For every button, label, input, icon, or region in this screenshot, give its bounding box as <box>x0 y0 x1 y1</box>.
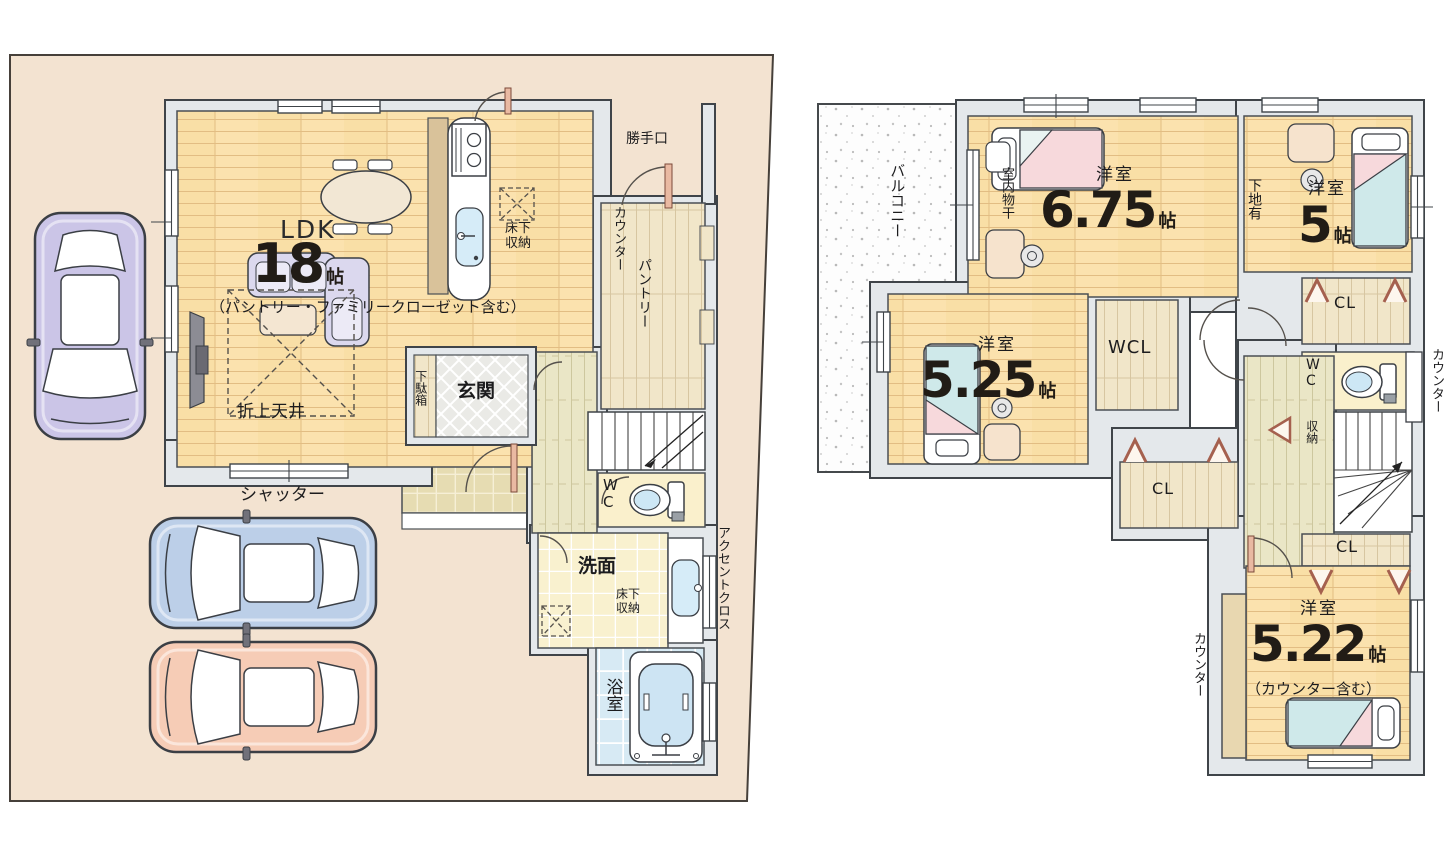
room-5-size: 5 <box>1298 203 1331 248</box>
label-bathroom: 浴室 <box>602 678 622 712</box>
room-525-size: 5.25 <box>920 358 1035 403</box>
label-wall-backing: 下地有 <box>1246 178 1262 220</box>
pantry-shelf <box>700 226 714 260</box>
room-size-ldk: 18 帖 <box>252 240 344 289</box>
car-purple <box>27 213 153 439</box>
label-indoor-laundry: 室内物干 <box>998 167 1013 219</box>
kitchen-island <box>428 118 490 300</box>
room-522-size: 5.22 <box>1250 622 1365 667</box>
room-675-size: 6.75 <box>1040 188 1155 233</box>
label-closet-upper-right: CL <box>1334 294 1356 312</box>
label-underfloor-storage-kitchen: 床下 収納 <box>496 222 540 252</box>
bathtub <box>630 652 702 762</box>
label-washroom: 洗面 <box>578 556 616 578</box>
room-522-unit: 帖 <box>1368 647 1386 665</box>
pantry-shelf <box>700 310 714 344</box>
label-wc-1f: W C <box>603 477 618 512</box>
label-pantry: パントリー <box>636 258 652 328</box>
label-counter-1f: カウンター <box>610 206 625 271</box>
label-shutter: シャッター <box>240 486 325 506</box>
floor-plan-canvas: 勝手口 カウンター パントリー LDK 18 帖 （パントリー・ファミリークロー… <box>0 0 1453 862</box>
label-balcony: バルコニー <box>888 163 905 238</box>
label-underfloor-storage-washroom: 床下 収納 <box>606 588 650 616</box>
ldk-unit: 帖 <box>326 269 344 287</box>
stairs-1f <box>588 412 705 470</box>
label-ldk-note: （パントリー・ファミリークローゼット含む） <box>210 299 526 316</box>
room-5-unit: 帖 <box>1334 228 1352 246</box>
label-shoe-cabinet: 下駄箱 <box>413 370 427 406</box>
label-room-522-note: （カウンター含む） <box>1246 681 1381 698</box>
bed-522 <box>1286 698 1400 748</box>
label-storage: 収納 <box>1304 420 1318 444</box>
room-size-675: 6.75 帖 <box>1040 188 1176 233</box>
label-walk-in-closet: WCL <box>1108 338 1151 359</box>
car-pink <box>150 634 376 760</box>
floor-plan-drawing <box>0 0 1453 862</box>
room-675-unit: 帖 <box>1158 213 1176 231</box>
wc-counter <box>1406 352 1422 422</box>
washstand <box>672 560 702 616</box>
label-back-door: 勝手口 <box>626 131 668 147</box>
label-closet-middle: CL <box>1152 480 1174 498</box>
car-blue <box>150 510 376 636</box>
bed-5 <box>1352 128 1408 248</box>
label-counter-right: カウンター <box>1428 348 1443 413</box>
label-coffered-ceiling: 折上天井 <box>237 403 305 423</box>
label-closet-lower: CL <box>1336 538 1358 556</box>
room-size-525: 5.25 帖 <box>920 358 1056 403</box>
label-accent-cloth: アクセントクロス <box>714 526 729 630</box>
ldk-size: 18 <box>252 240 323 289</box>
label-wc-2f: W C <box>1306 357 1320 389</box>
room-size-522: 5.22 帖 <box>1250 622 1386 667</box>
room-525-unit: 帖 <box>1038 383 1056 401</box>
room-size-5: 5 帖 <box>1298 203 1352 248</box>
label-counter-left: カウンター <box>1190 632 1205 697</box>
label-entrance: 玄関 <box>457 381 495 403</box>
